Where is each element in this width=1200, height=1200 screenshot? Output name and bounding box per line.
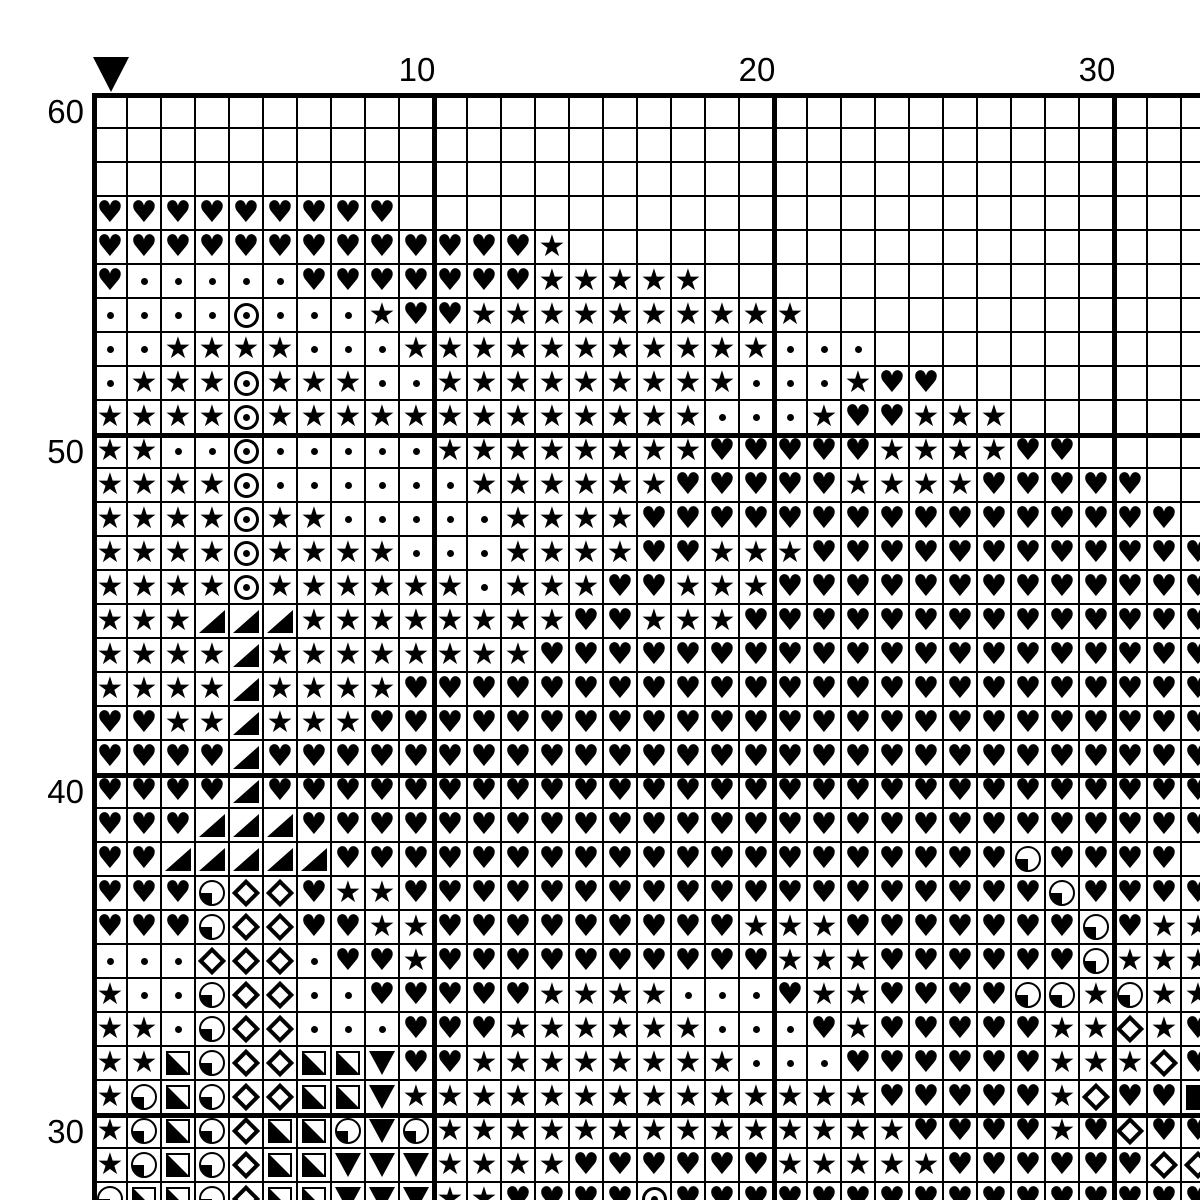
grid-cell [400, 1149, 434, 1183]
heart-icon: ♥ [505, 265, 532, 297]
grid-cell: ♥ [196, 741, 230, 775]
heart-icon: ♥ [403, 843, 430, 875]
grid-cell [264, 95, 298, 129]
grid-cell: ♥ [1114, 741, 1148, 775]
grid-cell [774, 1013, 808, 1047]
heart-icon: ♥ [97, 741, 124, 773]
star-icon: ★ [437, 571, 464, 603]
grid-cell: ★ [536, 571, 570, 605]
grid-cell [400, 469, 434, 503]
grid-cell: ♥ [672, 537, 706, 571]
heart-icon: ♥ [1151, 741, 1178, 773]
grid-cell: ♥ [264, 197, 298, 231]
grid-cell: ★ [434, 639, 468, 673]
heart-icon: ♥ [369, 945, 396, 977]
heart-icon: ♥ [811, 809, 838, 841]
star-icon: ★ [675, 435, 702, 467]
star-icon: ★ [845, 367, 872, 399]
grid-cell [1012, 401, 1046, 435]
heart-icon: ♥ [471, 911, 498, 943]
grid-cell: ★ [978, 435, 1012, 469]
grid-cell: ♥ [1046, 605, 1080, 639]
star-icon: ★ [505, 1013, 532, 1045]
star-icon: ★ [301, 537, 328, 569]
quarter-circle-lower-left-icon [199, 1152, 225, 1178]
grid-cell [366, 1183, 400, 1200]
quarter-circle-lower-left-icon [1117, 982, 1143, 1008]
grid-cell: ♥ [1080, 775, 1114, 809]
grid-cell [196, 95, 230, 129]
grid-cell [366, 435, 400, 469]
grid-cell [638, 197, 672, 231]
grid-cell: ★ [604, 503, 638, 537]
grid-cell: ♥ [944, 843, 978, 877]
grid-cell: ★ [536, 1149, 570, 1183]
star-icon: ★ [573, 503, 600, 535]
grid-cell: ♥ [876, 673, 910, 707]
grid-cell: ★ [94, 537, 128, 571]
grid-cell [1148, 231, 1182, 265]
grid-cell [94, 95, 128, 129]
grid-cell [740, 231, 774, 265]
grid-cell: ★ [468, 333, 502, 367]
grid-cell: ♥ [400, 741, 434, 775]
grid-cell: ★ [842, 367, 876, 401]
star-icon: ★ [811, 401, 838, 433]
heart-icon: ♥ [199, 775, 226, 807]
grid-cell: ★ [774, 1115, 808, 1149]
grid-cell: ♥ [706, 1149, 740, 1183]
grid-cell: ♥ [298, 197, 332, 231]
grid-cell [1148, 1047, 1182, 1081]
heart-icon: ♥ [811, 605, 838, 637]
heart-icon: ♥ [913, 1183, 940, 1200]
grid-cell: ★ [502, 1149, 536, 1183]
star-icon: ★ [743, 537, 770, 569]
grid-cell [264, 469, 298, 503]
grid-cell [162, 265, 196, 299]
grid-cell: ♥ [842, 571, 876, 605]
heart-icon: ♥ [131, 775, 158, 807]
grid-cell: ★ [570, 401, 604, 435]
grid-cell: ♥ [774, 775, 808, 809]
circle-dot-icon [234, 405, 259, 430]
grid-cell: ♥ [604, 571, 638, 605]
heart-icon: ♥ [1083, 571, 1110, 603]
heart-icon: ♥ [471, 809, 498, 841]
grid-cell: ♥ [1114, 707, 1148, 741]
heart-icon: ♥ [947, 945, 974, 977]
triangle-lower-right-icon [233, 610, 259, 633]
heart-icon: ♥ [335, 197, 362, 229]
heart-icon: ♥ [471, 265, 498, 297]
grid-cell: ♥ [910, 1047, 944, 1081]
heart-icon: ♥ [1015, 1149, 1042, 1181]
dot-icon [175, 278, 182, 285]
heart-icon: ♥ [1185, 639, 1200, 671]
heart-icon: ♥ [709, 809, 736, 841]
grid-cell: ♥ [468, 1013, 502, 1047]
grid-cell: ★ [94, 1047, 128, 1081]
dot-icon [209, 278, 216, 285]
grid-cell: ♥ [842, 435, 876, 469]
grid-cell: ★ [808, 401, 842, 435]
grid-cell: ♥ [944, 911, 978, 945]
grid-cell [1080, 163, 1114, 197]
grid-cell [706, 265, 740, 299]
heart-icon: ♥ [1015, 877, 1042, 909]
grid-cell: ♥ [570, 945, 604, 979]
grid-cell: ♥ [1012, 877, 1046, 911]
heart-icon: ♥ [1117, 707, 1144, 739]
grid-cell: ★ [604, 469, 638, 503]
grid-cell [536, 129, 570, 163]
grid-cell [1012, 129, 1046, 163]
grid-cell: ★ [366, 639, 400, 673]
grid-cell: ★ [570, 537, 604, 571]
grid-cell: ♥ [774, 571, 808, 605]
heart-icon: ♥ [165, 877, 192, 909]
grid-cell [876, 265, 910, 299]
star-icon: ★ [1117, 945, 1144, 977]
dot-icon [141, 278, 148, 285]
grid-cell: ★ [842, 979, 876, 1013]
triangle-lower-right-icon [233, 814, 259, 837]
grid-cell: ★ [94, 503, 128, 537]
grid-cell [264, 605, 298, 639]
grid-cell: ♥ [978, 877, 1012, 911]
grid-cell: ♥ [536, 843, 570, 877]
grid-line [92, 93, 97, 1200]
star-icon: ★ [573, 1081, 600, 1113]
grid-cell: ♥ [400, 1013, 434, 1047]
grid-cell [1080, 401, 1114, 435]
grid-cell: ★ [468, 605, 502, 639]
grid-cell: ★ [1182, 945, 1200, 979]
grid-cell [366, 1047, 400, 1081]
heart-icon: ♥ [641, 741, 668, 773]
grid-cell [672, 197, 706, 231]
grid-cell [1080, 265, 1114, 299]
heart-icon: ♥ [131, 741, 158, 773]
grid-cell: ♥ [1080, 469, 1114, 503]
heart-icon: ♥ [131, 707, 158, 739]
heart-icon: ♥ [573, 707, 600, 739]
star-icon: ★ [607, 1081, 634, 1113]
star-icon: ★ [131, 673, 158, 705]
grid-cell: ♥ [1046, 809, 1080, 843]
heart-icon: ♥ [369, 231, 396, 263]
heart-icon: ♥ [1083, 469, 1110, 501]
dot-icon [277, 312, 284, 319]
grid-cell [128, 1115, 162, 1149]
grid-cell: ♥ [672, 673, 706, 707]
dot-icon [753, 992, 760, 999]
star-icon: ★ [573, 367, 600, 399]
grid-cell: ♥ [298, 231, 332, 265]
grid-cell: ♥ [366, 843, 400, 877]
heart-icon: ♥ [1117, 741, 1144, 773]
dot-icon [107, 380, 114, 387]
star-icon: ★ [233, 333, 260, 365]
grid-cell [264, 1047, 298, 1081]
grid-cell: ♥ [468, 843, 502, 877]
grid-cell: ♥ [570, 809, 604, 843]
heart-icon: ♥ [1083, 843, 1110, 875]
star-icon: ★ [267, 367, 294, 399]
dot-icon [175, 312, 182, 319]
star-icon: ★ [131, 537, 158, 569]
grid-cell: ★ [434, 1115, 468, 1149]
heart-icon: ♥ [607, 707, 634, 739]
heart-icon: ♥ [641, 945, 668, 977]
heart-icon: ♥ [335, 741, 362, 773]
grid-cell: ★ [808, 945, 842, 979]
star-icon: ★ [97, 1081, 124, 1113]
grid-cell [366, 129, 400, 163]
grid-cell: ♥ [910, 1081, 944, 1115]
grid-cell: ★ [400, 333, 434, 367]
dot-icon [209, 448, 216, 455]
dot-icon [787, 1026, 794, 1033]
grid-cell: ♥ [468, 673, 502, 707]
grid-cell [1114, 163, 1148, 197]
triangle-down-icon [335, 1187, 361, 1200]
grid-cell: ★ [128, 639, 162, 673]
heart-icon: ♥ [879, 1081, 906, 1113]
grid-cell: ♥ [910, 367, 944, 401]
grid-cell [400, 129, 434, 163]
grid-cell [230, 843, 264, 877]
grid-cell: ★ [1080, 1013, 1114, 1047]
grid-cell: ★ [570, 435, 604, 469]
dot-icon [447, 482, 454, 489]
heart-icon: ♥ [641, 673, 668, 705]
grid-cell [774, 1047, 808, 1081]
heart-icon: ♥ [1015, 1013, 1042, 1045]
dot-icon [481, 516, 488, 523]
grid-cell: ♥ [162, 197, 196, 231]
grid-cell: ♥ [1046, 741, 1080, 775]
grid-cell: ♥ [876, 979, 910, 1013]
grid-cell: ♥ [808, 877, 842, 911]
heart-icon: ♥ [1185, 741, 1200, 773]
grid-cell: ★ [94, 401, 128, 435]
grid-cell: ♥ [910, 673, 944, 707]
heart-icon: ♥ [607, 1149, 634, 1181]
grid-cell: ★ [434, 435, 468, 469]
grid-cell: ★ [468, 401, 502, 435]
grid-cell: ★ [468, 469, 502, 503]
heart-icon: ♥ [403, 673, 430, 705]
star-icon: ★ [131, 1013, 158, 1045]
grid-cell: ★ [706, 1115, 740, 1149]
grid-cell: ★ [366, 571, 400, 605]
heart-icon: ♥ [335, 945, 362, 977]
grid-cell [808, 163, 842, 197]
grid-cell: ★ [162, 707, 196, 741]
circle-dot-icon [234, 507, 259, 532]
dot-icon [311, 312, 318, 319]
grid-cell: ♥ [876, 503, 910, 537]
grid-cell: ♥ [1182, 639, 1200, 673]
dot-icon [311, 346, 318, 353]
grid-cell: ♥ [944, 537, 978, 571]
dot-icon [753, 414, 760, 421]
grid-cell: ♥ [638, 843, 672, 877]
dot-icon [311, 1026, 318, 1033]
heart-icon: ♥ [607, 809, 634, 841]
heart-icon: ♥ [165, 231, 192, 263]
grid-cell [1148, 129, 1182, 163]
heart-icon: ♥ [845, 401, 872, 433]
star-icon: ★ [879, 469, 906, 501]
grid-cell: ★ [638, 333, 672, 367]
heart-icon: ♥ [539, 775, 566, 807]
heart-icon: ♥ [1083, 639, 1110, 671]
grid-cell: ♥ [876, 809, 910, 843]
grid-cell: ★ [502, 605, 536, 639]
grid-cell [366, 333, 400, 367]
grid-cell [400, 367, 434, 401]
heart-icon: ♥ [471, 877, 498, 909]
grid-cell [196, 299, 230, 333]
filled-square-icon [1186, 1085, 1200, 1110]
heart-icon: ♥ [539, 843, 566, 875]
grid-cell [978, 367, 1012, 401]
heart-icon: ♥ [607, 639, 634, 671]
grid-cell: ♥ [638, 673, 672, 707]
heart-icon: ♥ [301, 197, 328, 229]
heart-icon: ♥ [811, 877, 838, 909]
grid-cell [434, 163, 468, 197]
heart-icon: ♥ [777, 775, 804, 807]
heart-icon: ♥ [233, 197, 260, 229]
grid-cell [842, 129, 876, 163]
grid-cell: ♥ [842, 1183, 876, 1200]
grid-cell: ♥ [298, 911, 332, 945]
grid-cell [264, 911, 298, 945]
grid-cell [944, 197, 978, 231]
grid-cell: ♥ [604, 741, 638, 775]
grid-cell [128, 945, 162, 979]
grid-cell: ♥ [94, 877, 128, 911]
diamond-outline-icon [1184, 1151, 1200, 1179]
star-icon: ★ [709, 537, 736, 569]
heart-icon: ♥ [97, 843, 124, 875]
star-icon: ★ [709, 571, 736, 603]
grid-cell: ♥ [638, 503, 672, 537]
star-icon: ★ [777, 537, 804, 569]
heart-icon: ♥ [1015, 741, 1042, 773]
grid-cell: ♥ [1182, 707, 1200, 741]
grid-cell: ♥ [604, 639, 638, 673]
quarter-circle-lower-left-icon [1083, 948, 1109, 974]
star-icon: ★ [437, 1081, 464, 1113]
grid-cell: ♥ [638, 809, 672, 843]
grid-cell: ♥ [1114, 911, 1148, 945]
heart-icon: ♥ [879, 945, 906, 977]
grid-cell: ★ [774, 1081, 808, 1115]
grid-cell: ♥ [740, 503, 774, 537]
star-icon: ★ [97, 979, 124, 1011]
diamond-outline-icon [232, 947, 260, 975]
grid-cell: ♥ [1012, 775, 1046, 809]
grid-cell: ♥ [876, 537, 910, 571]
square-lower-left-half-icon [302, 1119, 326, 1143]
heart-icon: ♥ [981, 605, 1008, 637]
grid-cell: ♥ [468, 741, 502, 775]
grid-cell [230, 741, 264, 775]
grid-cell [842, 197, 876, 231]
grid-cell [1080, 367, 1114, 401]
grid-cell: ♥ [1114, 571, 1148, 605]
heart-icon: ♥ [879, 401, 906, 433]
heart-icon: ♥ [777, 741, 804, 773]
circle-dot-icon [642, 1187, 667, 1200]
grid-cell: ♥ [978, 809, 1012, 843]
grid-cell: ★ [604, 1047, 638, 1081]
star-icon: ★ [505, 503, 532, 535]
grid-cell: ♥ [332, 197, 366, 231]
grid-cell: ★ [672, 299, 706, 333]
grid-cell: ♥ [502, 877, 536, 911]
grid-cell: ♥ [434, 979, 468, 1013]
triangle-lower-right-icon [267, 848, 293, 871]
quarter-circle-lower-left-icon [199, 1016, 225, 1042]
heart-icon: ♥ [947, 911, 974, 943]
star-icon: ★ [97, 1013, 124, 1045]
star-icon: ★ [913, 1149, 940, 1181]
heart-icon: ♥ [1117, 1149, 1144, 1181]
grid-cell [570, 231, 604, 265]
grid-cell: ♥ [910, 945, 944, 979]
grid-cell: ★ [502, 401, 536, 435]
grid-cell: ♥ [1080, 707, 1114, 741]
heart-icon: ♥ [267, 741, 294, 773]
grid-cell: ♥ [604, 673, 638, 707]
heart-icon: ♥ [675, 1149, 702, 1181]
diamond-outline-icon [266, 1049, 294, 1077]
circle-dot-icon [234, 575, 259, 600]
grid-cell: ★ [502, 1081, 536, 1115]
grid-cell: ♥ [604, 945, 638, 979]
grid-cell: ♥ [910, 1115, 944, 1149]
diamond-outline-icon [266, 913, 294, 941]
heart-icon: ♥ [301, 877, 328, 909]
heart-icon: ♥ [811, 503, 838, 535]
grid-cell [162, 95, 196, 129]
triangle-lower-right-icon [233, 678, 259, 701]
grid-cell [1046, 129, 1080, 163]
star-icon: ★ [1049, 1013, 1076, 1045]
grid-cell [230, 1013, 264, 1047]
star-icon: ★ [403, 1081, 430, 1113]
grid-cell: ♥ [842, 707, 876, 741]
heart-icon: ♥ [539, 877, 566, 909]
grid-cell: ♥ [1148, 1115, 1182, 1149]
grid-cell [196, 129, 230, 163]
heart-icon: ♥ [505, 1183, 532, 1200]
star-icon: ★ [777, 1115, 804, 1147]
dot-icon [243, 278, 250, 285]
grid-cell: ♥ [944, 1013, 978, 1047]
heart-icon: ♥ [981, 809, 1008, 841]
heart-icon: ♥ [743, 877, 770, 909]
grid-cell: ♥ [944, 1149, 978, 1183]
triangle-down-icon [369, 1119, 395, 1143]
grid-cell [400, 537, 434, 571]
